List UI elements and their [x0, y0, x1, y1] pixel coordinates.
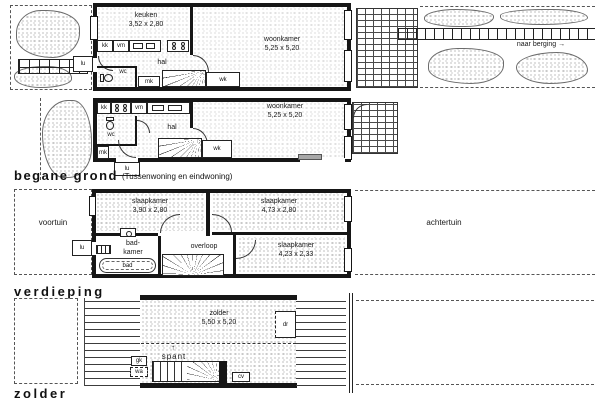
- property-line: [356, 300, 594, 301]
- attic-boundary: [14, 298, 78, 384]
- sink-icon: [146, 43, 155, 49]
- wk-closet: wk: [206, 72, 240, 87]
- back-garden-shrubs: [424, 9, 494, 27]
- side-garden-shrubs: [16, 10, 80, 58]
- front-door-opening: [93, 58, 97, 72]
- window: [344, 50, 352, 82]
- dr-roof-window: dr: [275, 311, 296, 338]
- floorplan-canvas: lu keuken 3,52 x 2,80 woonkamer 5,25 x 5…: [0, 0, 600, 400]
- stairs: [152, 361, 220, 382]
- fence: [398, 28, 595, 40]
- radiator-icon: [96, 245, 111, 254]
- sink-icon: [152, 105, 164, 111]
- entrance-canopy: lu: [73, 56, 93, 72]
- window: [344, 248, 352, 272]
- cv-boiler: cv: [232, 372, 250, 382]
- wall: [93, 87, 351, 91]
- woonkamer-label: woonkamer 5,25 x 5,20: [235, 103, 335, 121]
- slaapkamer1-label: slaapkamer 3,90 x 2,80: [104, 198, 196, 216]
- bathtub-label: bad: [102, 261, 153, 270]
- party-wall-line: [349, 293, 353, 393]
- woonkamer-label: woonkamer 5,25 x 5,20: [232, 36, 332, 54]
- naar-berging-label: naar berging →: [495, 41, 587, 50]
- stair-treads: [153, 362, 187, 381]
- roof-slope-hatch: [296, 298, 346, 386]
- zolder-label: zolder 5,50 x 5,20: [172, 310, 266, 328]
- vm-appliance: vm: [113, 40, 129, 52]
- stair-wall: [219, 361, 227, 386]
- burner-icon: [181, 46, 185, 50]
- window: [344, 104, 352, 130]
- caption-first-floor: verdieping: [14, 284, 105, 299]
- wc-label: wc: [114, 69, 132, 77]
- back-garden-shrubs: [428, 48, 504, 84]
- property-line: [356, 384, 594, 385]
- lu-label: lu: [81, 61, 86, 67]
- wall: [97, 66, 137, 68]
- wall: [135, 66, 137, 87]
- vm-appliance: vm: [131, 102, 147, 114]
- property-line: [420, 6, 595, 7]
- wall: [190, 102, 193, 128]
- side-garden-shrubs: [42, 100, 92, 178]
- stair-winders: [187, 362, 219, 381]
- property-line: [355, 190, 595, 191]
- entrance-canopy: lu: [72, 240, 92, 256]
- hal-label: hal: [158, 124, 186, 133]
- wall: [158, 236, 161, 278]
- burner-icon: [123, 108, 127, 112]
- hal-label: hal: [148, 59, 176, 68]
- wk-closet: wk: [202, 140, 232, 158]
- stairs: [162, 254, 224, 276]
- badkamer-label: bad- kamer: [112, 240, 154, 258]
- spant-line: [141, 343, 296, 344]
- burner-icon: [115, 108, 119, 112]
- wa-washbasin: wa: [130, 367, 148, 377]
- property-line: [355, 274, 595, 275]
- wall: [93, 3, 351, 7]
- window: [344, 136, 352, 160]
- voortuin-label: voortuin: [24, 218, 82, 228]
- burner-icon: [172, 46, 176, 50]
- property-line: [420, 87, 595, 88]
- wc-label: wc: [102, 132, 120, 140]
- caption-ground-floor: begane grond: [14, 168, 118, 183]
- wall: [190, 3, 193, 55]
- keuken-label: keuken 3,52 x 2,80: [100, 12, 192, 30]
- window: [89, 196, 96, 216]
- window: [344, 10, 352, 40]
- sink-icon: [168, 105, 182, 111]
- mk-closet: mk: [97, 146, 109, 159]
- toilet-icon: [100, 72, 114, 84]
- slaapkamer3-label: slaapkamer 4,23 x 2,33: [248, 242, 344, 260]
- stairs: [158, 138, 202, 158]
- stairs: [162, 70, 206, 87]
- back-garden-shrubs: [516, 52, 588, 84]
- window: [344, 196, 352, 222]
- slaapkamer2-label: slaapkamer 4,73 x 2,80: [228, 198, 330, 216]
- sink-icon: [133, 43, 143, 49]
- kk-cupboard: kk: [97, 102, 111, 114]
- bathtub-icon: bad: [99, 258, 156, 273]
- achtertuin-label: achtertuin: [412, 218, 476, 228]
- arrow-right-icon: →: [558, 41, 565, 48]
- wall: [206, 189, 210, 236]
- gk-box: gk: [131, 356, 147, 366]
- caption-ground-floor-note: (Tussenwoning en eindwoning): [122, 172, 232, 181]
- caption-attic: zolder: [14, 386, 67, 400]
- overloop-label: overloop: [180, 243, 228, 252]
- front-garden-boundary: [14, 189, 92, 275]
- terrace-paving: [356, 8, 418, 88]
- window: [90, 16, 98, 40]
- washbasin-icon: [120, 228, 136, 237]
- mk-closet: mk: [138, 76, 160, 87]
- stove-icon: [111, 102, 131, 114]
- kk-cupboard: kk: [97, 40, 113, 52]
- back-garden-shrubs: [500, 9, 588, 25]
- toilet-icon: [104, 117, 116, 131]
- back-door-sill: [298, 154, 322, 160]
- door-opening: [92, 242, 96, 255]
- stove-icon: [167, 40, 189, 52]
